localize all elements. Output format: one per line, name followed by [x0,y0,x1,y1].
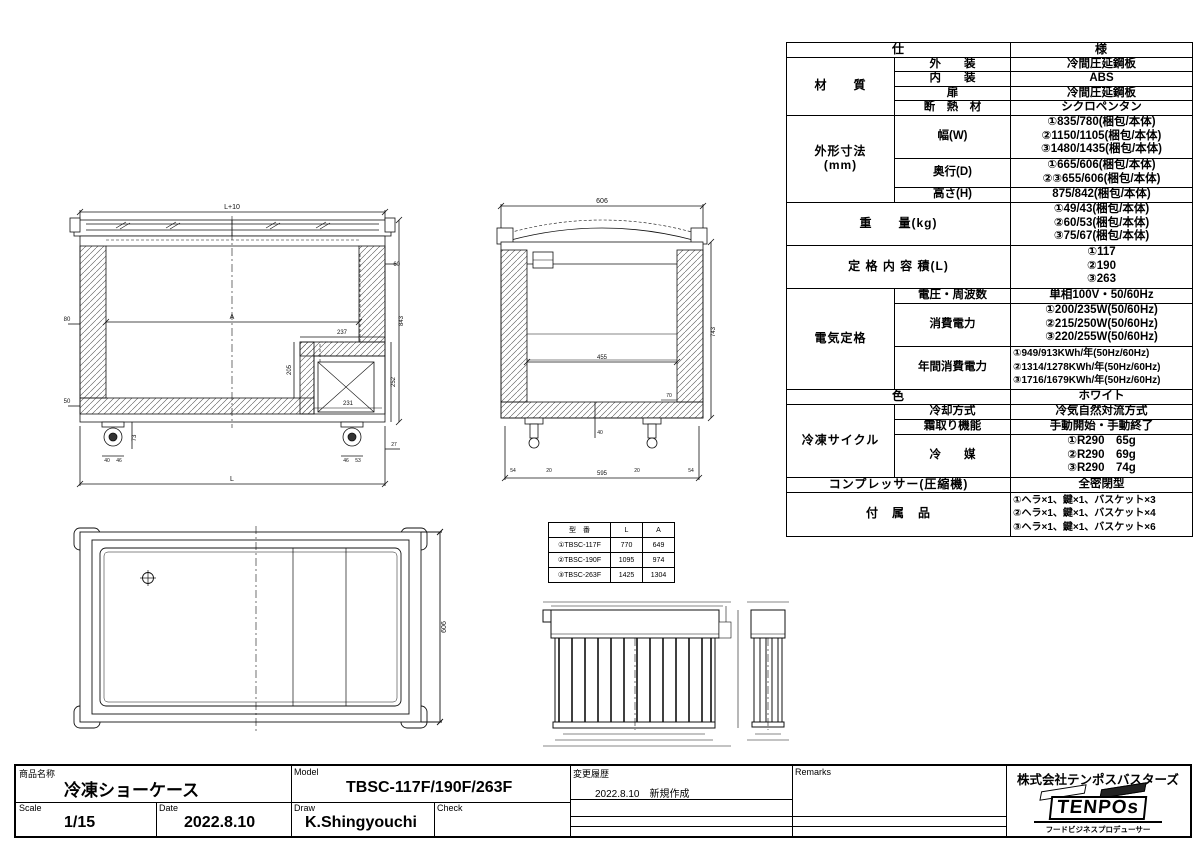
dim-label: 606 [596,198,608,205]
spec-row-value: ①200/235W(50/60Hz) ②215/250W(50/60Hz) ③2… [1011,303,1193,346]
spec-row-name: 扉 [895,86,1011,101]
dim-label: 606 [441,621,448,633]
spec-row-name: 年間消費電力 [895,346,1011,389]
spec-row-name: 電圧・周波数 [895,288,1011,303]
side-section-view: 606 455 743 595 54 20 20 54 70 40 [487,194,717,489]
spec-row-name: 霜取り機能 [895,419,1011,434]
spec-header-left: 仕 [787,43,1011,58]
dim-label: 70 [666,393,672,399]
spec-capacity-label: 定 格 内 容 積(L) [787,245,1011,288]
spec-row-value: ABS [1011,72,1193,87]
check-cell: Check [434,802,570,836]
dim-label: 20 [634,468,640,474]
draw-label: Draw [294,803,315,813]
dim-label: 20 [546,468,552,474]
spec-row-name: 内 装 [895,72,1011,87]
spec-row-name: 外 装 [895,57,1011,72]
spec-row-name: 奥行(D) [895,158,1011,187]
spec-row-name: 冷却方式 [895,404,1011,419]
spec-electric-label: 電気定格 [787,288,895,389]
dim-label: 46 [343,458,349,464]
dim-label: 843 [399,315,405,326]
model-table-header: L [611,523,643,538]
dim-label: 46 [116,458,122,464]
dim-label: 53 [355,458,361,464]
spec-row-name: 消費電力 [895,303,1011,346]
model-cell: Model TBSC-117F/190F/263F [291,766,570,802]
spec-row-name: 冷 媒 [895,434,1011,477]
spec-row-value: 冷間圧延鋼板 [1011,57,1193,72]
spec-dimensions-label: 外形寸法 (mm) [787,115,895,202]
dim-label: 54 [510,468,516,474]
spec-row-value: ①49/43(梱包/本体) ②60/53(梱包/本体) ③75/67(梱包/本体… [1011,202,1193,245]
company-cell: 株式会社テンポスバスターズ TENPOs フードビジネスプロデューサー [1006,766,1190,836]
dim-label: 40 [597,430,603,436]
spec-row-value: ①949/913KWh/年(50Hz/60Hz) ②1314/1278KWh/年… [1011,346,1193,389]
date-label: Date [159,803,178,813]
history-entry: 2022.8.10 新規作成 [595,785,690,800]
dim-label: 27 [391,442,397,448]
date-value: 2022.8.10 [184,814,255,832]
spec-row-value: 冷間圧延鋼板 [1011,86,1193,101]
spec-header-right: 様 [1011,43,1193,58]
product-name: 冷凍ショーケース [64,776,199,801]
model-table-header: A [643,523,675,538]
spec-row-value: ①665/606(梱包/本体) ②③655/606(梱包/本体) [1011,158,1193,187]
draw-value: K.Shingyouchi [305,814,417,832]
spec-row-name: 高さ(H) [895,187,1011,202]
plan-view: 606 [68,526,453,731]
dim-label: 595 [597,471,608,477]
company-logo: TENPOs フードビジネスプロデューサー [1034,790,1162,835]
dim-label: 73 [132,434,138,441]
dim-label: 54 [688,468,694,474]
dim-label: L+10 [224,204,240,211]
remarks-cell: Remarks [792,766,1006,836]
spec-material-label: 材 質 [787,57,895,115]
spec-row-value: 単相100V・50/60Hz [1011,288,1193,303]
basket-views [533,596,793,751]
table-row: ③TBSC-263F 1425 1304 [549,568,675,583]
dim-label: 205 [287,364,293,375]
product-name-cell: 商品名称 冷凍ショーケース [16,766,291,802]
date-cell: Date 2022.8.10 [156,802,291,836]
spec-cycle-label: 冷凍サイクル [787,404,895,477]
spec-row-value: 冷気自然対流方式 [1011,404,1193,419]
check-label: Check [437,803,463,813]
model-table-header: 型 番 [549,523,611,538]
model-value: TBSC-117F/190F/263F [346,779,512,797]
dim-label: 252 [391,376,397,387]
remarks-label: Remarks [795,767,831,777]
dim-label: 231 [343,401,354,407]
table-row: ②TBSC-190F 1095 974 [549,553,675,568]
spec-row-value: ①R290 65g ②R290 69g ③R290 74g [1011,434,1193,477]
logo-text: TENPOs [1049,796,1148,820]
history-label: 変更履歴 [573,767,609,780]
title-block: 商品名称 冷凍ショーケース Model TBSC-117F/190F/263F … [14,764,1192,838]
spec-table: 仕 様 材 質 外 装 冷間圧延鋼板 内 装 ABS 扉 冷間圧延鋼板 断 熱 … [786,42,1193,537]
spec-color-label: 色 [787,389,1011,404]
spec-accessory-label: 付 属 品 [787,492,1011,536]
dim-label: 40 [104,458,110,464]
company-tagline: フードビジネスプロデューサー [1034,821,1162,835]
table-row: ①TBSC-117F 770 649 [549,538,675,553]
dim-label: 50 [64,399,71,405]
draw-cell: Draw K.Shingyouchi [291,802,434,836]
spec-weight-label: 重 量(kg) [787,202,1011,245]
product-name-label: 商品名称 [19,767,55,780]
spec-row-name: 幅(W) [895,115,1011,158]
spec-compressor-label: コンプレッサー(圧縮機) [787,477,1011,492]
spec-row-value: ①ヘラ×1、鍵×1、バスケット×3 ②ヘラ×1、鍵×1、バスケット×4 ③ヘラ×… [1011,492,1193,536]
spec-row-value: ホワイト [1011,389,1193,404]
spec-row-name: 断 熱 材 [895,101,1011,116]
spec-row-value: ①835/780(梱包/本体) ②1150/1105(梱包/本体) ③1480/… [1011,115,1193,158]
dim-label: 60 [393,262,400,268]
spec-row-value: 手動開始・手動終了 [1011,419,1193,434]
drawing-sheet: { "spec": { "header_left": "仕", "header_… [0,0,1200,848]
front-section-view: L+10 A L 237 231 205 252 843 60 80 50 73… [60,194,405,499]
model-label: Model [294,767,319,777]
spec-row-value: ①117 ②190 ③263 [1011,245,1193,288]
dim-label: 237 [337,330,348,336]
dim-label: 743 [711,326,717,337]
scale-cell: Scale 1/15 [16,802,156,836]
dim-label: 455 [597,355,608,361]
scale-label: Scale [19,803,42,813]
spec-row-value: 875/842(梱包/本体) [1011,187,1193,202]
company-name: 株式会社テンポスバスターズ [1006,769,1190,788]
dim-label: L [230,476,234,483]
dim-label: A [230,314,235,321]
history-cell: 変更履歴 2022.8.10 新規作成 [570,766,792,836]
scale-value: 1/15 [64,814,95,832]
dim-label: 80 [64,317,71,323]
spec-row-value: 全密閉型 [1011,477,1193,492]
spec-row-value: シクロペンタン [1011,101,1193,116]
model-dimension-table: 型 番 L A ①TBSC-117F 770 649 ②TBSC-190F 10… [548,522,675,583]
